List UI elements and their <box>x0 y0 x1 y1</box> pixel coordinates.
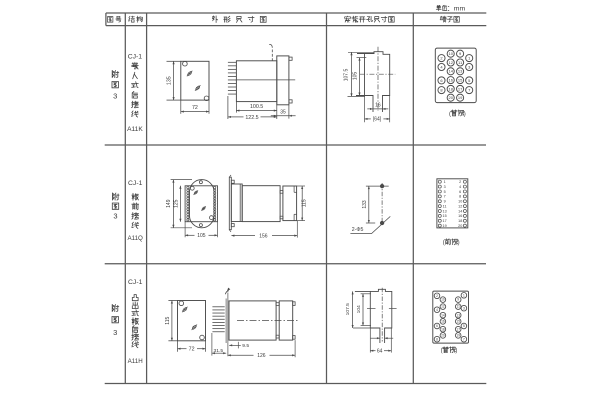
svg-text:16: 16 <box>458 214 462 218</box>
svg-text:2: 2 <box>459 180 461 184</box>
svg-text:10: 10 <box>458 200 462 204</box>
svg-text:13: 13 <box>456 313 460 317</box>
svg-text:2: 2 <box>436 294 438 298</box>
svg-text:149: 149 <box>166 199 172 208</box>
svg-text:20: 20 <box>448 95 453 100</box>
svg-text:1: 1 <box>463 293 465 297</box>
svg-text:2-Φ5: 2-Φ5 <box>352 227 364 233</box>
svg-text:17: 17 <box>443 219 447 223</box>
svg-text:31.5: 31.5 <box>214 348 224 354</box>
svg-text:18: 18 <box>458 219 462 223</box>
svg-text:5: 5 <box>444 190 446 194</box>
svg-text:107.5: 107.5 <box>345 303 351 316</box>
svg-text:72: 72 <box>192 105 198 111</box>
svg-text:17: 17 <box>458 86 463 91</box>
svg-text:(: ( <box>441 348 443 354</box>
svg-text:9: 9 <box>444 200 446 204</box>
svg-text:7: 7 <box>444 195 446 199</box>
svg-text:14: 14 <box>448 69 453 74</box>
svg-text:15: 15 <box>458 78 463 83</box>
svg-text:(: ( <box>443 240 445 246</box>
svg-text:122.5: 122.5 <box>245 115 258 121</box>
svg-text:A11K: A11K <box>127 126 143 133</box>
svg-text:12: 12 <box>441 305 445 309</box>
svg-text:156: 156 <box>259 233 268 239</box>
svg-text:12: 12 <box>448 60 453 65</box>
svg-text:3: 3 <box>113 211 117 220</box>
svg-text:7: 7 <box>463 337 465 341</box>
svg-text:CJ-1: CJ-1 <box>128 180 143 187</box>
svg-text:4: 4 <box>436 308 438 312</box>
svg-text:(: ( <box>449 111 451 117</box>
svg-text:105: 105 <box>352 72 358 81</box>
svg-text:20: 20 <box>441 334 445 338</box>
svg-text:12: 12 <box>458 204 462 208</box>
svg-text:35: 35 <box>280 110 286 116</box>
svg-text:3: 3 <box>463 306 465 310</box>
svg-text:10: 10 <box>441 298 445 302</box>
svg-text:17: 17 <box>456 327 460 331</box>
svg-text:): ) <box>455 348 457 354</box>
svg-text:CJ-1: CJ-1 <box>128 53 143 60</box>
svg-text:11: 11 <box>457 305 461 309</box>
svg-text:19: 19 <box>456 334 460 338</box>
svg-text:115: 115 <box>302 199 308 207</box>
svg-text:13: 13 <box>443 209 447 213</box>
svg-text:8: 8 <box>436 337 438 341</box>
svg-text:3: 3 <box>113 91 117 100</box>
svg-text:10: 10 <box>448 51 453 56</box>
svg-text:16: 16 <box>448 78 453 83</box>
svg-text:CJ-1: CJ-1 <box>128 279 143 286</box>
svg-text:：mm: ：mm <box>447 5 465 12</box>
svg-text:64: 64 <box>377 348 383 354</box>
svg-text:107.5: 107.5 <box>344 69 350 82</box>
svg-text:100.5: 100.5 <box>250 104 263 110</box>
svg-text:6: 6 <box>436 324 438 328</box>
svg-text:A11Q: A11Q <box>128 235 144 242</box>
svg-text:19: 19 <box>458 95 463 100</box>
svg-text:A11H: A11H <box>128 358 143 365</box>
svg-text:14: 14 <box>441 313 445 317</box>
svg-text:): ) <box>458 240 460 246</box>
svg-text:15: 15 <box>443 214 447 218</box>
svg-text:18: 18 <box>441 327 445 331</box>
svg-text:3: 3 <box>113 328 117 337</box>
svg-text:15: 15 <box>456 320 460 324</box>
svg-text:[64]: [64] <box>373 117 382 123</box>
svg-text:6: 6 <box>459 190 461 194</box>
svg-text:126: 126 <box>257 353 266 359</box>
svg-text:3: 3 <box>444 185 446 189</box>
svg-text:16: 16 <box>375 103 381 109</box>
svg-text:9: 9 <box>457 298 459 302</box>
svg-text:1: 1 <box>444 180 446 184</box>
svg-text:125: 125 <box>173 199 179 208</box>
svg-text:19: 19 <box>443 224 447 228</box>
svg-text:5: 5 <box>463 324 465 328</box>
svg-text:11: 11 <box>443 204 447 208</box>
svg-text:13: 13 <box>458 69 463 74</box>
svg-text:8: 8 <box>459 195 461 199</box>
svg-text:9.5: 9.5 <box>242 343 249 349</box>
svg-text:115: 115 <box>165 317 171 325</box>
svg-text:135: 135 <box>167 76 173 85</box>
svg-text:104: 104 <box>356 305 362 313</box>
svg-text:20: 20 <box>458 224 462 228</box>
svg-text:14: 14 <box>458 209 462 213</box>
svg-text:72: 72 <box>189 347 195 353</box>
svg-text:4: 4 <box>459 185 461 189</box>
svg-text:16: 16 <box>441 320 445 324</box>
svg-text:): ) <box>464 111 466 117</box>
svg-text:18: 18 <box>448 86 453 91</box>
svg-text:133: 133 <box>362 200 368 209</box>
svg-text:105: 105 <box>197 233 206 239</box>
